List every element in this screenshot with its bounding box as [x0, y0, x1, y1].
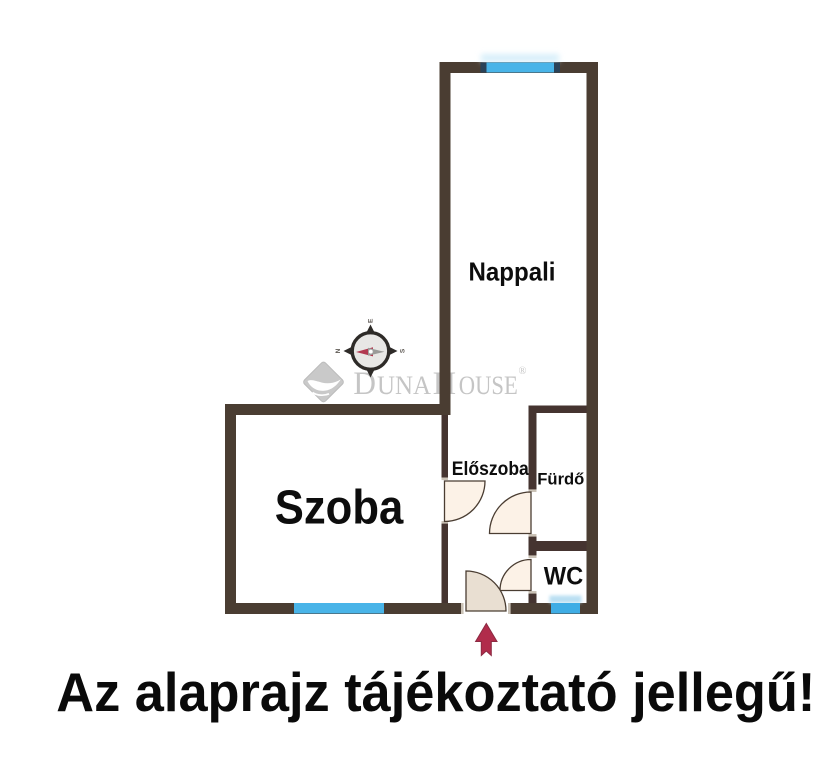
svg-text:Nappali: Nappali	[469, 257, 556, 287]
svg-text:WC: WC	[544, 563, 584, 591]
svg-text:Fürdő: Fürdő	[537, 469, 584, 488]
svg-text:Előszoba: Előszoba	[452, 459, 529, 480]
svg-text:S: S	[400, 348, 407, 353]
svg-text:UNA: UNA	[377, 371, 431, 400]
svg-text:Szoba: Szoba	[275, 481, 404, 534]
svg-text:N: N	[335, 348, 342, 353]
svg-text:®: ®	[519, 366, 527, 377]
svg-text:Az alaprajz tájékoztató jelleg: Az alaprajz tájékoztató jellegű!	[56, 661, 815, 723]
svg-text:OUSE: OUSE	[459, 371, 518, 400]
svg-text:E: E	[368, 318, 375, 323]
